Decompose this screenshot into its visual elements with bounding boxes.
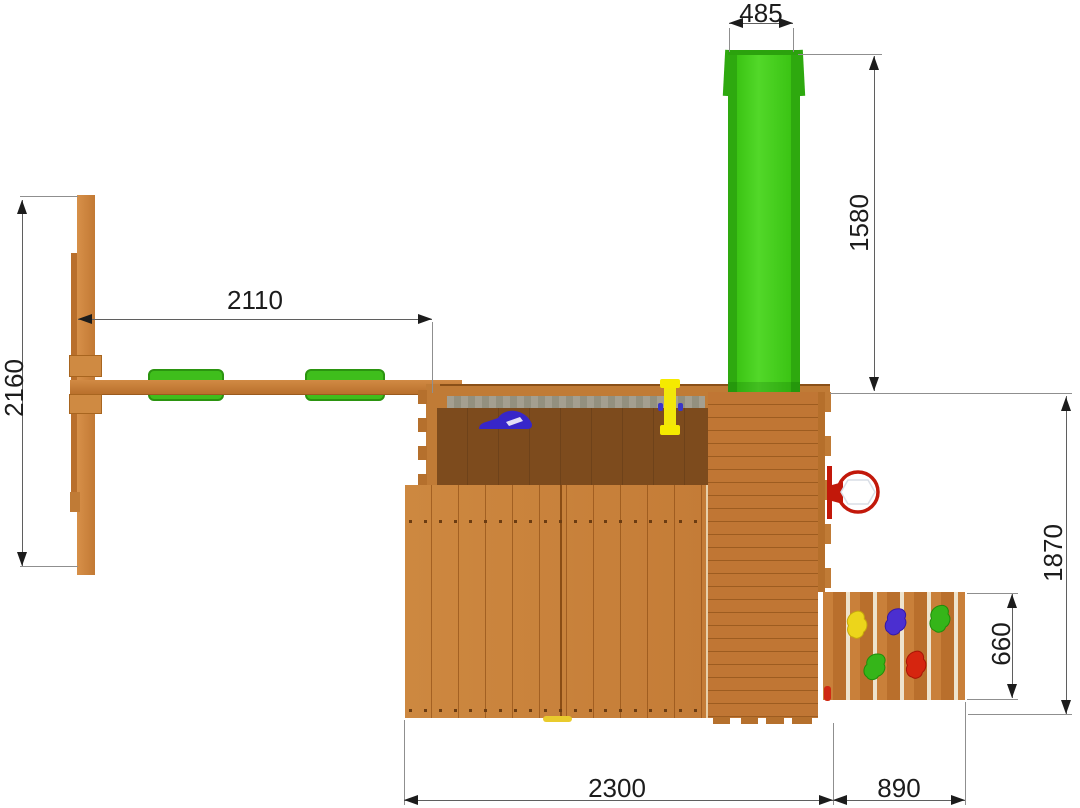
bottom-board-end xyxy=(766,717,784,724)
dim-arrow xyxy=(418,314,432,324)
dim-label-2300: 2300 xyxy=(577,775,657,801)
right-wall-board-end xyxy=(825,568,831,588)
deck-roof-gap xyxy=(706,485,708,718)
slide-bed xyxy=(737,52,791,392)
roof xyxy=(405,485,708,718)
dim-arrow xyxy=(17,552,27,566)
periscope-cap-bottom xyxy=(660,425,680,435)
hoop-ring xyxy=(835,469,881,515)
climbing-hold-red xyxy=(902,649,929,681)
bottom-board-end xyxy=(741,717,758,724)
swing-post-step xyxy=(70,492,80,512)
roof-nail-row xyxy=(409,709,704,712)
grab-handle xyxy=(478,408,534,432)
right-wall-board-end xyxy=(825,436,831,456)
slide-top-cap xyxy=(728,50,800,55)
dim-label-2160: 2160 xyxy=(1,346,23,430)
swing-beam-bracket-bottom xyxy=(69,394,102,414)
swing-beam xyxy=(70,380,462,395)
tower-right-wall xyxy=(818,392,825,592)
dim-arrow xyxy=(1061,700,1071,714)
dim-arrow xyxy=(869,377,879,391)
bottom-board-end xyxy=(713,717,730,724)
left-wall-board-end xyxy=(418,390,427,404)
playground-top-view-drawing: 485 1580 2110 2160 1870 xyxy=(0,0,1080,808)
right-wall-board-end xyxy=(825,392,831,412)
left-wall-board-end xyxy=(418,418,427,432)
slide-bottom-shade xyxy=(728,382,800,392)
dim-arrow xyxy=(404,795,418,805)
dim-arrow xyxy=(833,795,847,805)
left-wall-board-end xyxy=(418,446,427,460)
dim-label-660: 660 xyxy=(988,612,1010,676)
periscope-dot-right xyxy=(678,403,683,411)
climbing-hold-purple xyxy=(882,605,911,639)
dim-arrow xyxy=(869,56,879,70)
dim-label-1580: 1580 xyxy=(846,183,868,263)
swing-beam-bracket-top xyxy=(69,355,102,377)
periscope-cap-top xyxy=(660,379,680,388)
dim-label-2110: 2110 xyxy=(215,287,295,313)
dim-label-1870: 1870 xyxy=(1040,511,1062,595)
climbing-hold-red-edge xyxy=(824,686,831,701)
dim-arrow xyxy=(1007,594,1017,608)
dim-arrow xyxy=(78,314,92,324)
dim-arrow xyxy=(1061,397,1071,411)
dim-arrow xyxy=(819,795,833,805)
slide-rail-left xyxy=(728,52,737,392)
dim-arrow xyxy=(1007,684,1017,698)
periscope-dot-left xyxy=(658,403,663,411)
roof-nail-row xyxy=(409,520,704,523)
climbing-hold-yellow xyxy=(843,608,871,641)
dim-arrow xyxy=(17,200,27,214)
bottom-board-end xyxy=(792,717,812,724)
dim-label-890: 890 xyxy=(859,775,939,801)
slide-rail-right xyxy=(791,52,800,392)
dim-arrow xyxy=(951,795,965,805)
deck-boards xyxy=(708,392,818,718)
right-wall-board-end xyxy=(825,524,831,544)
dim-label-485: 485 xyxy=(721,0,801,26)
climbing-hold-green xyxy=(928,604,952,634)
sandbox-edge xyxy=(543,716,572,722)
